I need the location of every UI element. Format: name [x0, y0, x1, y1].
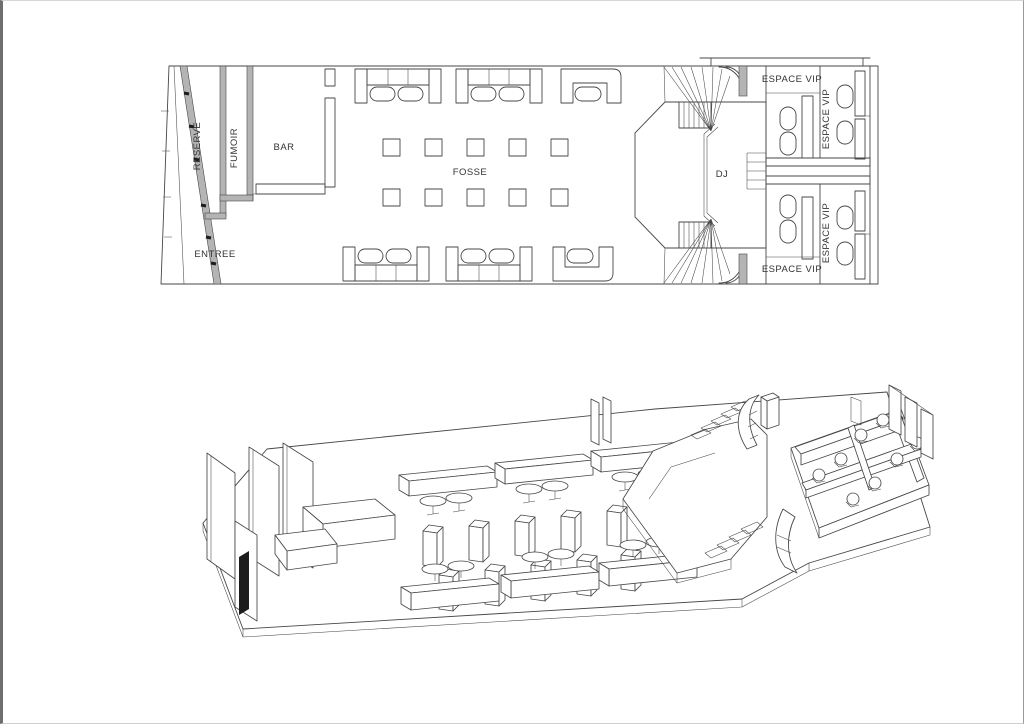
sofa-group	[446, 247, 532, 281]
espace-vip-top-label: ESPACE VIP	[762, 74, 822, 85]
dj-stage	[635, 102, 766, 248]
espace-vip-bottom-label: ESPACE VIP	[762, 264, 822, 275]
espace-vip-right-bottom-label: ESPACE VIP	[821, 203, 832, 263]
sofa-3d	[495, 454, 593, 503]
bar-label: BAR	[274, 142, 295, 153]
fumoir-label: FUMOIR	[229, 128, 240, 168]
plan-labels: RESERVE FUMOIR BAR ENTREE FOSSE DJ ESPAC…	[192, 74, 832, 275]
sofa-3d	[401, 561, 499, 610]
staircase-bottom	[664, 219, 747, 284]
dj-label: DJ	[716, 169, 729, 180]
reserve-label: RESERVE	[192, 122, 203, 170]
axo-dj-stage	[623, 393, 797, 583]
espace-vip-right-top-label: ESPACE VIP	[821, 89, 832, 149]
seating-north	[355, 69, 621, 103]
sofa-group	[355, 69, 441, 103]
staircase-top	[664, 66, 747, 131]
entree-label: ENTREE	[194, 249, 235, 260]
corner-sofa	[561, 69, 621, 103]
outer-walls	[161, 58, 878, 284]
sofa-3d	[399, 466, 497, 515]
corner-sofa	[553, 247, 613, 281]
seating-south	[343, 247, 613, 281]
vip-area	[747, 66, 870, 284]
architectural-drawing-canvas: RESERVE FUMOIR BAR ENTREE FOSSE DJ ESPAC…	[3, 1, 1024, 724]
fosse-label: FOSSE	[453, 167, 487, 178]
drawing-page: RESERVE FUMOIR BAR ENTREE FOSSE DJ ESPAC…	[0, 0, 1024, 724]
entrance-door	[239, 551, 249, 615]
sofa-group	[343, 247, 429, 281]
axonometric-view	[203, 385, 933, 637]
sofa-group	[456, 69, 542, 103]
floor-plan-2d: RESERVE FUMOIR BAR ENTREE FOSSE DJ ESPAC…	[161, 58, 878, 284]
bar-counter	[256, 69, 335, 194]
